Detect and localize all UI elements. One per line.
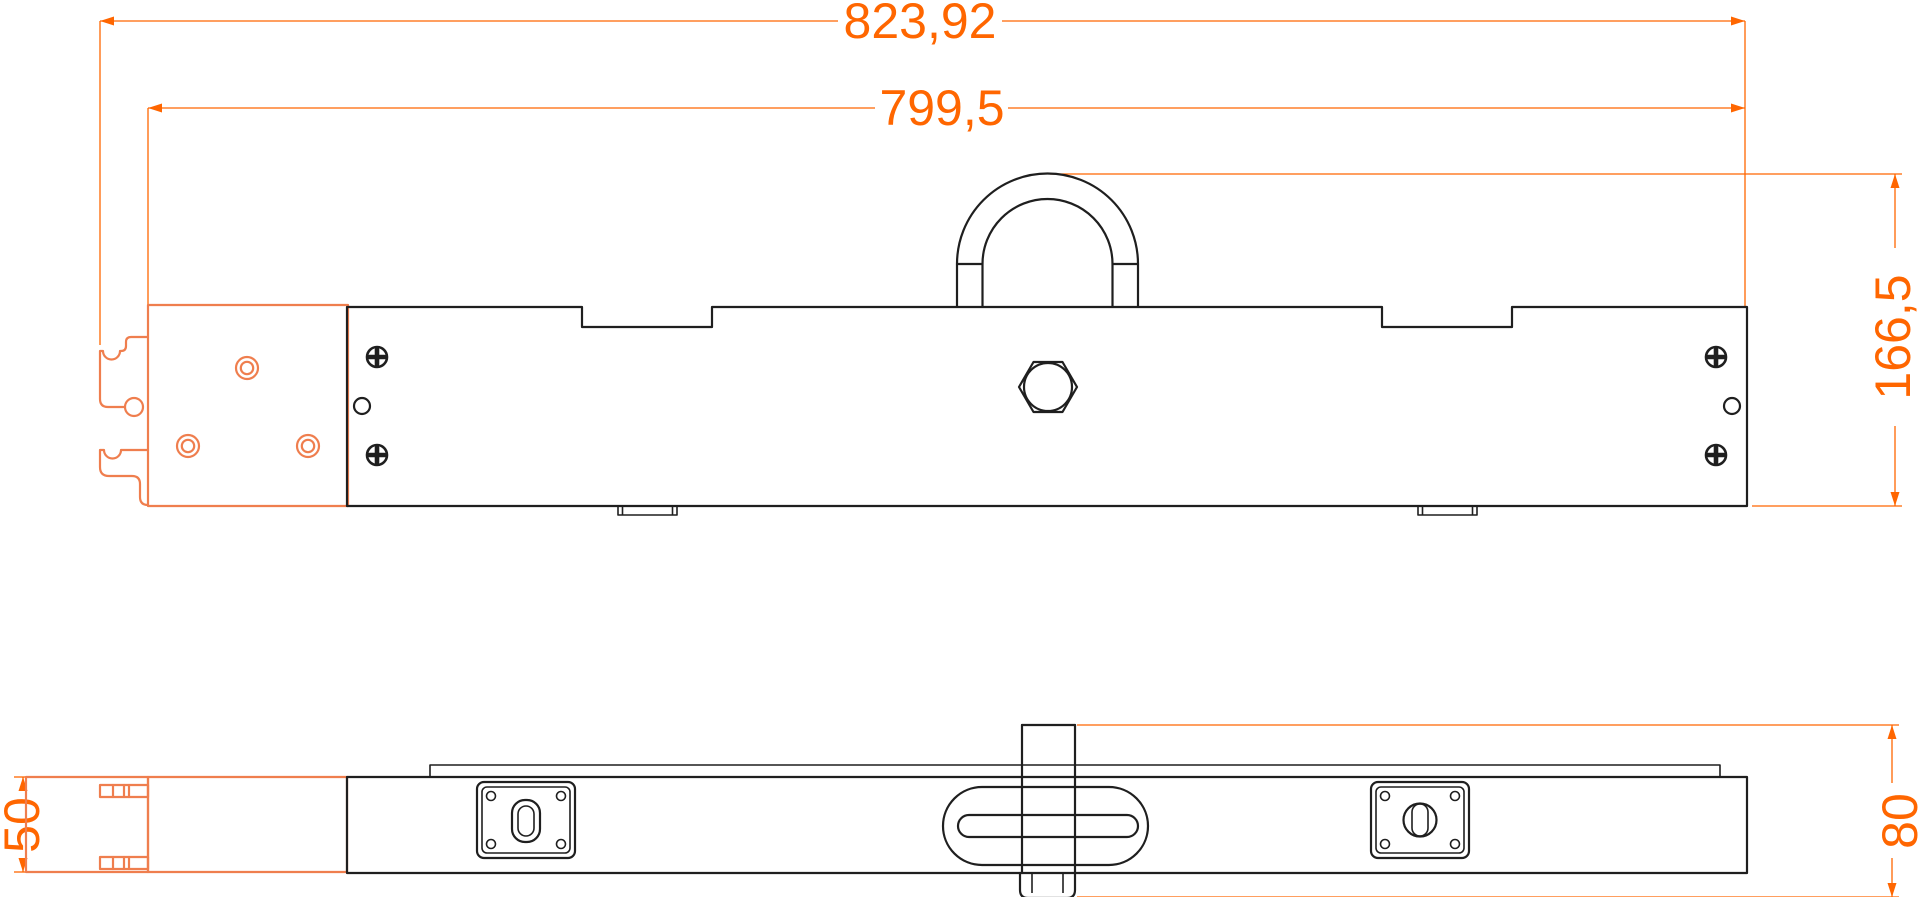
phillips-screw <box>1706 445 1726 465</box>
slot-inner <box>518 806 534 836</box>
dim-overall-width-label: 823,92 <box>844 0 997 49</box>
rivet-ring <box>297 435 319 457</box>
arrowhead <box>1731 104 1745 113</box>
clip-tongue <box>100 785 148 797</box>
plate-screw-hole <box>1381 792 1390 801</box>
bottom-tab <box>1418 506 1477 515</box>
phantom-plate <box>148 305 348 506</box>
bottom-view-phantom <box>26 777 347 872</box>
dim-total-height-label: 166,5 <box>1865 274 1920 399</box>
arrowhead <box>100 17 114 26</box>
mount-plate-left <box>477 782 575 858</box>
plate-screw-hole <box>1451 792 1460 801</box>
hex-bolt-head <box>1020 873 1075 897</box>
phillips-screw <box>367 347 387 367</box>
arrowhead <box>1888 725 1897 739</box>
bracket-stadium-slot <box>958 815 1138 837</box>
arrowhead <box>1891 492 1900 506</box>
arrowhead <box>1891 174 1900 188</box>
plate-screw-hole <box>557 792 566 801</box>
bail-handle <box>957 174 1138 307</box>
rivet-ring <box>177 435 199 457</box>
plate-screw-hole <box>1381 840 1390 849</box>
top-view-body <box>347 174 1747 516</box>
bracket-stadium-outer <box>943 787 1148 865</box>
phantom-plate-block <box>148 777 347 872</box>
phillips-screw <box>367 445 387 465</box>
cylinder <box>1404 804 1437 837</box>
plain-hole <box>354 398 370 414</box>
plate-screw-hole <box>487 840 496 849</box>
dim-body-width-label: 799,5 <box>879 80 1004 136</box>
technical-drawing: 823,92 799,5 166,5 <box>0 0 1920 897</box>
arrowhead <box>1888 883 1897 897</box>
phillips-screw <box>1706 347 1726 367</box>
clip-lower-finger <box>100 450 148 505</box>
dim-body-width: 799,5 <box>148 80 1745 305</box>
clip-tongue <box>100 857 148 869</box>
bottom-view-body <box>347 725 1747 897</box>
dim-center-height: 80 <box>1077 725 1920 897</box>
arrowhead <box>1731 17 1745 26</box>
mount-plate-right <box>1371 782 1469 858</box>
clip-pivot-hole <box>125 398 143 416</box>
top-view-phantom-bracket <box>100 305 348 506</box>
body-outline <box>347 307 1747 506</box>
hex-nut <box>1019 362 1077 412</box>
dimension-layer: 823,92 799,5 166,5 <box>0 0 1920 897</box>
plate-screw-hole <box>487 792 496 801</box>
clip-upper-finger <box>100 337 148 407</box>
arrowhead <box>148 104 162 113</box>
plate-screw-hole <box>557 840 566 849</box>
slot-inner <box>1412 804 1428 836</box>
dim-overall-width: 823,92 <box>100 0 1745 345</box>
plate-screw-hole <box>1451 840 1460 849</box>
plain-hole <box>1724 398 1740 414</box>
rivet-ring <box>236 357 258 379</box>
drawing-canvas: 823,92 799,5 166,5 <box>0 0 1920 897</box>
bottom-tab <box>618 506 677 515</box>
dim-total-height: 166,5 <box>1050 174 1920 506</box>
handle-bracket-bottom <box>943 725 1148 897</box>
dim-center-height-label: 80 <box>1872 793 1920 849</box>
